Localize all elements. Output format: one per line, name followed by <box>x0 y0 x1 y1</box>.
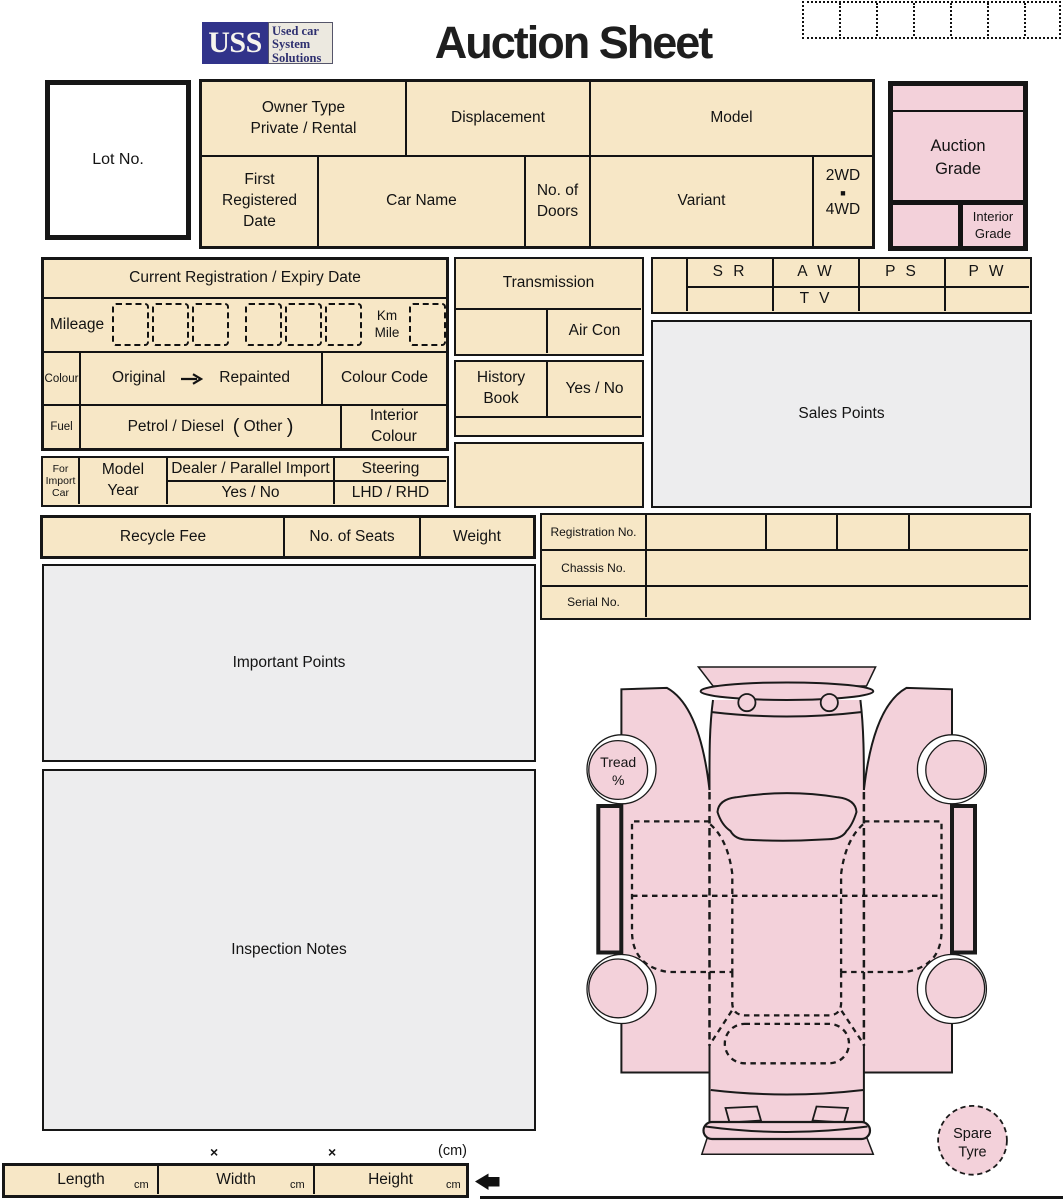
svg-text:%: % <box>612 772 624 788</box>
svg-text:Spare: Spare <box>953 1126 992 1142</box>
svg-text:Tread: Tread <box>600 754 636 770</box>
svg-text:Tyre: Tyre <box>958 1145 986 1161</box>
